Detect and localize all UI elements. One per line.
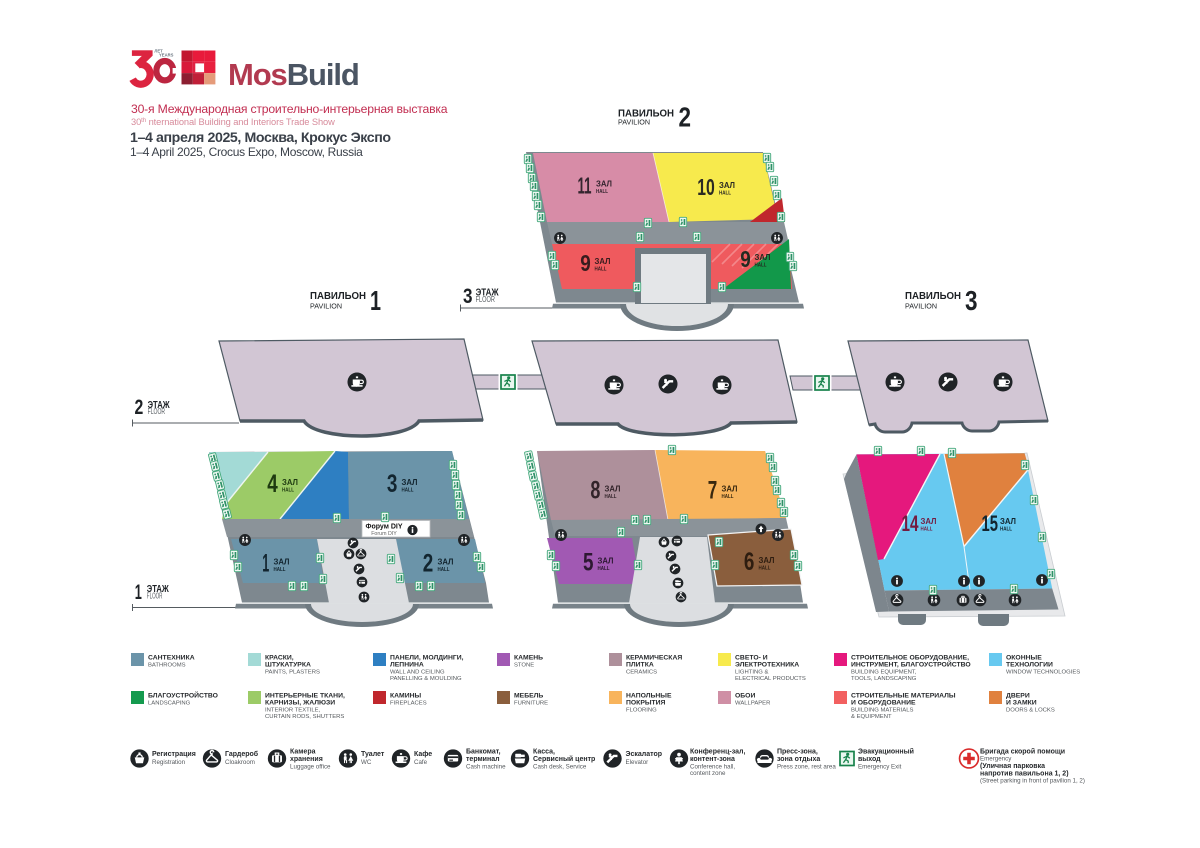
svg-text:& EQUIPMENT: & EQUIPMENT [851, 714, 892, 720]
svg-text:14: 14 [902, 511, 920, 536]
svg-text:хранения: хранения [290, 756, 323, 763]
svg-text:ЗАЛ: ЗАЛ [598, 557, 614, 566]
svg-text:ШТУКАТУРКА: ШТУКАТУРКА [265, 662, 311, 669]
svg-text:СТРОИТЕЛЬНОЕ ОБОРУДОВАНИЕ,: СТРОИТЕЛЬНОЕ ОБОРУДОВАНИЕ, [851, 655, 969, 662]
svg-text:Press zone, rest area: Press zone, rest area [777, 764, 836, 771]
svg-text:HALL: HALL [921, 527, 934, 533]
svg-text:11: 11 [578, 173, 592, 199]
svg-text:PAVILION: PAVILION [310, 302, 342, 311]
svg-text:зона отдыха: зона отдыха [777, 756, 820, 763]
svg-text:Туалет: Туалет [361, 751, 385, 758]
svg-text:ИНСТРУМЕНТ, БЛАГОУСТРОЙСТВО: ИНСТРУМЕНТ, БЛАГОУСТРОЙСТВО [851, 660, 971, 669]
svg-text:контент-зона: контент-зона [690, 756, 735, 763]
svg-text:КРАСКИ,: КРАСКИ, [265, 655, 294, 662]
svg-text:ЗАЛ: ЗАЛ [719, 181, 735, 190]
svg-text:content zone: content zone [690, 770, 726, 777]
svg-text:ЗАЛ: ЗАЛ [402, 478, 418, 487]
svg-text:2: 2 [679, 102, 692, 133]
svg-text:3: 3 [387, 470, 398, 498]
svg-text:PAINTS, PLASTERS: PAINTS, PLASTERS [265, 670, 320, 676]
svg-text:3: 3 [965, 285, 978, 316]
svg-text:Камера: Камера [290, 749, 316, 756]
svg-text:FLOOR: FLOOR [148, 407, 166, 416]
svg-text:10: 10 [697, 174, 715, 200]
svg-text:30th nternational Building and: 30th nternational Building and Interiors… [131, 117, 335, 127]
svg-text:Форум DIY: Форум DIY [365, 524, 402, 531]
svg-text:30-я Международная строительно: 30-я Международная строительно-интерьерн… [131, 102, 448, 116]
svg-text:3: 3 [463, 285, 473, 308]
svg-text:Cloakroom: Cloakroom [225, 759, 255, 766]
svg-text:7: 7 [708, 477, 718, 505]
svg-text:Касса,: Касса, [533, 749, 555, 756]
svg-text:HALL: HALL [274, 567, 287, 573]
svg-text:HALL: HALL [596, 189, 609, 195]
svg-text:HALL: HALL [755, 263, 768, 269]
svg-text:Registration: Registration [152, 759, 186, 766]
svg-text:ПОКРЫТИЯ: ПОКРЫТИЯ [626, 700, 666, 707]
svg-text:ЗАЛ: ЗАЛ [438, 558, 454, 567]
svg-text:FLOOR: FLOOR [476, 295, 496, 304]
svg-text:ДВЕРИ: ДВЕРИ [1006, 693, 1030, 700]
svg-text:ЗАЛ: ЗАЛ [759, 556, 775, 565]
svg-text:BUILDING MATERIALS: BUILDING MATERIALS [851, 708, 913, 714]
svg-text:ПАВИЛЬОН: ПАВИЛЬОН [905, 291, 961, 302]
svg-text:ЗАЛ: ЗАЛ [921, 517, 937, 526]
svg-text:PANELLING & MOULDING: PANELLING & MOULDING [390, 676, 462, 682]
svg-text:Emergency: Emergency [980, 756, 1012, 763]
svg-text:6: 6 [744, 548, 755, 576]
svg-text:HALL: HALL [402, 487, 415, 493]
svg-text:9: 9 [740, 246, 751, 272]
svg-text:Банкомат,: Банкомат, [466, 749, 501, 756]
svg-text:HALL: HALL [438, 567, 451, 573]
svg-text:HALL: HALL [722, 494, 735, 500]
svg-text:И ЗАМКИ: И ЗАМКИ [1006, 700, 1037, 707]
svg-text:ОКОННЫЕ: ОКОННЫЕ [1006, 655, 1042, 662]
svg-text:Emergency Exit: Emergency Exit [858, 764, 902, 771]
svg-text:1: 1 [370, 285, 381, 316]
svg-text:ЗАЛ: ЗАЛ [722, 485, 738, 494]
svg-text:КАМЕНЬ: КАМЕНЬ [514, 655, 543, 662]
svg-text:ОБОИ: ОБОИ [735, 693, 755, 700]
svg-text:СТРОИТЕЛЬНЫЕ МАТЕРИАЛЫ: СТРОИТЕЛЬНЫЕ МАТЕРИАЛЫ [851, 693, 956, 700]
svg-text:Бригада скорой помощи: Бригада скорой помощи [980, 748, 1065, 756]
svg-text:STONE: STONE [514, 663, 534, 669]
svg-text:4: 4 [267, 470, 278, 498]
svg-text:FURNITURE: FURNITURE [514, 701, 548, 707]
svg-text:1: 1 [262, 550, 269, 578]
svg-text:1: 1 [135, 581, 142, 604]
svg-text:КАМИНЫ: КАМИНЫ [390, 693, 422, 700]
svg-text:1–4 April 2025, Crocus Expo, M: 1–4 April 2025, Crocus Expo, Moscow, Rus… [130, 145, 363, 159]
svg-text:FLOORING: FLOORING [626, 708, 657, 714]
svg-text:КАРНИЗЫ, ЖАЛЮЗИ: КАРНИЗЫ, ЖАЛЮЗИ [265, 700, 335, 707]
svg-text:напротив павильона 1, 2): напротив павильона 1, 2) [980, 771, 1069, 778]
svg-text:ПАВИЛЬОН: ПАВИЛЬОН [310, 291, 366, 302]
svg-text:ЗАЛ: ЗАЛ [755, 253, 771, 262]
svg-text:КЕРАМИЧЕСКАЯ: КЕРАМИЧЕСКАЯ [626, 655, 682, 662]
svg-text:WC: WC [361, 759, 372, 766]
svg-text:TOOLS, LANDSCAPING: TOOLS, LANDSCAPING [851, 676, 917, 682]
svg-text:Cash machine: Cash machine [466, 764, 506, 771]
svg-text:ЗАЛ: ЗАЛ [274, 558, 290, 567]
svg-text:ЗАЛ: ЗАЛ [1000, 517, 1016, 526]
svg-text:Пресс-зона,: Пресс-зона, [777, 749, 818, 756]
svg-text:MosBuild: MosBuild [228, 57, 359, 92]
svg-text:HALL: HALL [759, 566, 772, 572]
svg-text:BUILDING EQUIPMENT,: BUILDING EQUIPMENT, [851, 670, 917, 676]
svg-text:HALL: HALL [605, 494, 618, 500]
svg-text:МЕБЕЛЬ: МЕБЕЛЬ [514, 693, 543, 700]
svg-text:BATHROOMS: BATHROOMS [148, 663, 186, 669]
svg-text:WALL AND CEILING: WALL AND CEILING [390, 670, 445, 676]
svg-text:ЗАЛ: ЗАЛ [282, 478, 298, 487]
svg-text:НАПОЛЬНЫЕ: НАПОЛЬНЫЕ [626, 693, 672, 700]
svg-text:Luggage office: Luggage office [290, 764, 331, 771]
svg-text:Эскалатор: Эскалатор [626, 751, 663, 758]
svg-text:15: 15 [982, 511, 999, 536]
svg-text:HALL: HALL [1000, 527, 1013, 533]
svg-text:Forum DIY: Forum DIY [371, 531, 397, 537]
svg-text:ТЕХНОЛОГИИ: ТЕХНОЛОГИИ [1006, 662, 1053, 669]
svg-text:FIREPLACES: FIREPLACES [390, 701, 427, 707]
svg-text:ЛЕПНИНА: ЛЕПНИНА [390, 662, 424, 669]
svg-text:ЗАЛ: ЗАЛ [596, 180, 612, 189]
svg-text:WINDOW TECHNOLOGIES: WINDOW TECHNOLOGIES [1006, 670, 1080, 676]
svg-text:8: 8 [590, 477, 600, 505]
svg-text:выход: выход [858, 756, 881, 763]
svg-text:(Уличная парковка: (Уличная парковка [980, 763, 1045, 770]
svg-text:(Street parking in front of pa: (Street parking in front of pavilion 1, … [980, 778, 1085, 785]
svg-text:CERAMICS: CERAMICS [626, 670, 657, 676]
svg-text:FLOOR: FLOOR [147, 591, 163, 600]
svg-text:WALLPAPER: WALLPAPER [735, 701, 770, 707]
svg-text:5: 5 [583, 549, 594, 577]
svg-text:Гардероб: Гардероб [225, 750, 259, 758]
svg-text:1–4 апреля 2025, Москва, Кроку: 1–4 апреля 2025, Москва, Крокус Экспо [130, 130, 391, 146]
svg-text:HALL: HALL [719, 191, 732, 197]
svg-text:Cash desk, Service: Cash desk, Service [533, 764, 587, 771]
svg-text:2: 2 [135, 396, 144, 419]
svg-text:БЛАГОУСТРОЙСТВО: БЛАГОУСТРОЙСТВО [148, 691, 218, 700]
svg-text:HALL: HALL [282, 487, 295, 493]
svg-text:HALL: HALL [598, 566, 611, 572]
svg-text:Elevator: Elevator [626, 759, 649, 766]
svg-text:Эвакуационный: Эвакуационный [858, 748, 914, 756]
svg-text:LANDSCAPING: LANDSCAPING [148, 701, 191, 707]
svg-text:INTERIOR TEXTILE,: INTERIOR TEXTILE, [265, 708, 321, 714]
svg-text:PAVILION: PAVILION [618, 118, 650, 127]
svg-text:Сервисный центр: Сервисный центр [533, 755, 595, 763]
svg-text:ЭЛЕКТРОТЕХНИКА: ЭЛЕКТРОТЕХНИКА [735, 662, 799, 669]
svg-text:ЗАЛ: ЗАЛ [595, 257, 611, 266]
svg-text:ПЛИТКА: ПЛИТКА [626, 662, 654, 669]
svg-text:САНТЕХНИКА: САНТЕХНИКА [148, 655, 195, 662]
svg-text:CURTAIN RODS, SHUTTERS: CURTAIN RODS, SHUTTERS [265, 714, 344, 720]
svg-text:СВЕТО- И: СВЕТО- И [735, 655, 768, 662]
svg-text:DOORS & LOCKS: DOORS & LOCKS [1006, 708, 1055, 714]
svg-text:Регистрация: Регистрация [152, 751, 196, 758]
svg-text:Cafe: Cafe [414, 759, 428, 766]
svg-text:ЗАЛ: ЗАЛ [605, 485, 621, 494]
svg-text:YEARS: YEARS [159, 52, 174, 57]
svg-text:И ОБОРУДОВАНИЕ: И ОБОРУДОВАНИЕ [851, 700, 916, 707]
svg-text:9: 9 [580, 250, 591, 276]
svg-text:ПАНЕЛИ, МОЛДИНГИ,: ПАНЕЛИ, МОЛДИНГИ, [390, 655, 464, 662]
svg-text:2: 2 [423, 550, 434, 578]
svg-text:HALL: HALL [595, 267, 608, 273]
svg-text:ИНТЕРЬЕРНЫЕ ТКАНИ,: ИНТЕРЬЕРНЫЕ ТКАНИ, [265, 693, 345, 700]
svg-text:Конференц-зал,: Конференц-зал, [690, 749, 745, 756]
svg-text:ELECTRICAL PRODUCTS: ELECTRICAL PRODUCTS [735, 676, 806, 682]
svg-text:PAVILION: PAVILION [905, 302, 937, 311]
svg-text:LIGHTING &: LIGHTING & [735, 670, 768, 676]
svg-text:терминал: терминал [466, 756, 500, 763]
svg-text:Кафе: Кафе [414, 751, 432, 758]
